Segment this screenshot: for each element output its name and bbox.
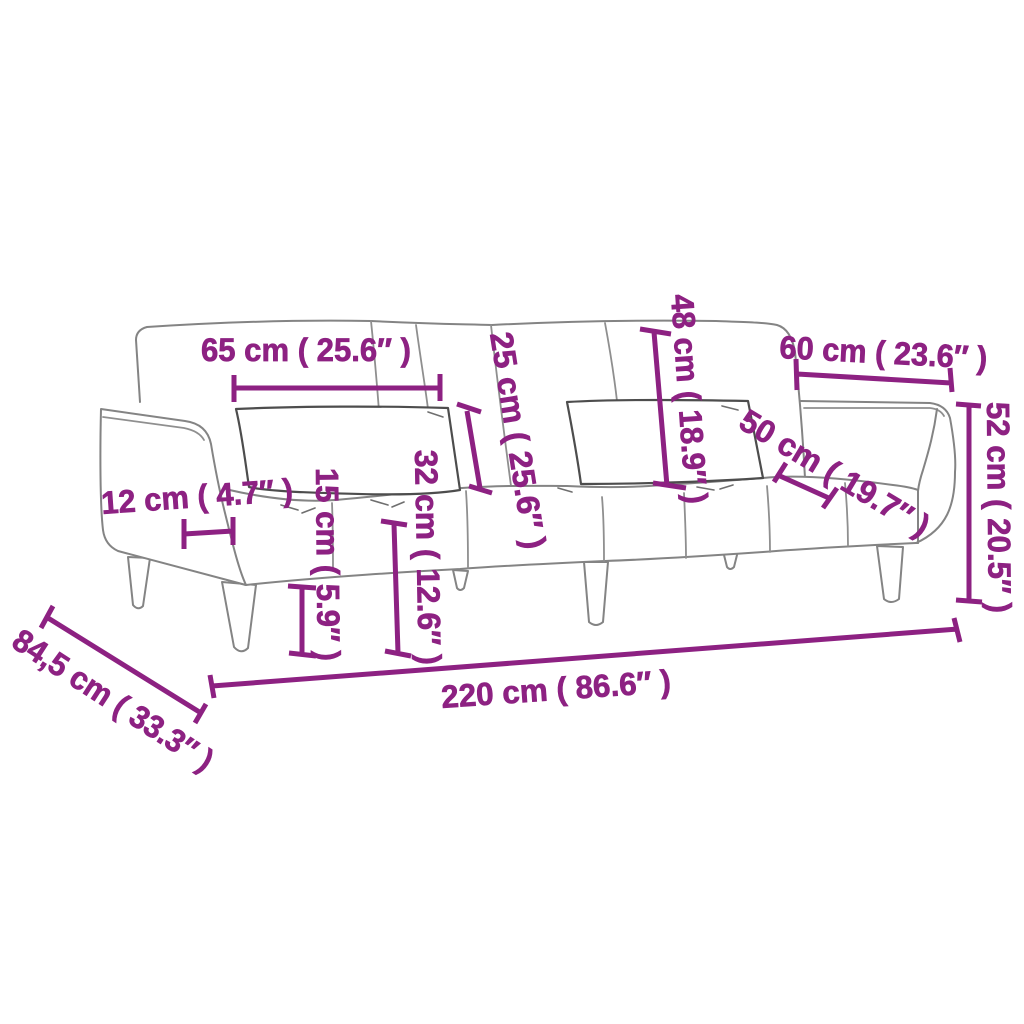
svg-text:52 cm ( 20.5″ ): 52 cm ( 20.5″ ) (980, 402, 1018, 613)
svg-text:15 cm ( 5.9″ ): 15 cm ( 5.9″ ) (309, 468, 347, 661)
svg-text:32 cm ( 12.6″ ): 32 cm ( 12.6″ ) (408, 449, 448, 665)
svg-text:65 cm ( 25.6″ ): 65 cm ( 25.6″ ) (201, 332, 411, 368)
